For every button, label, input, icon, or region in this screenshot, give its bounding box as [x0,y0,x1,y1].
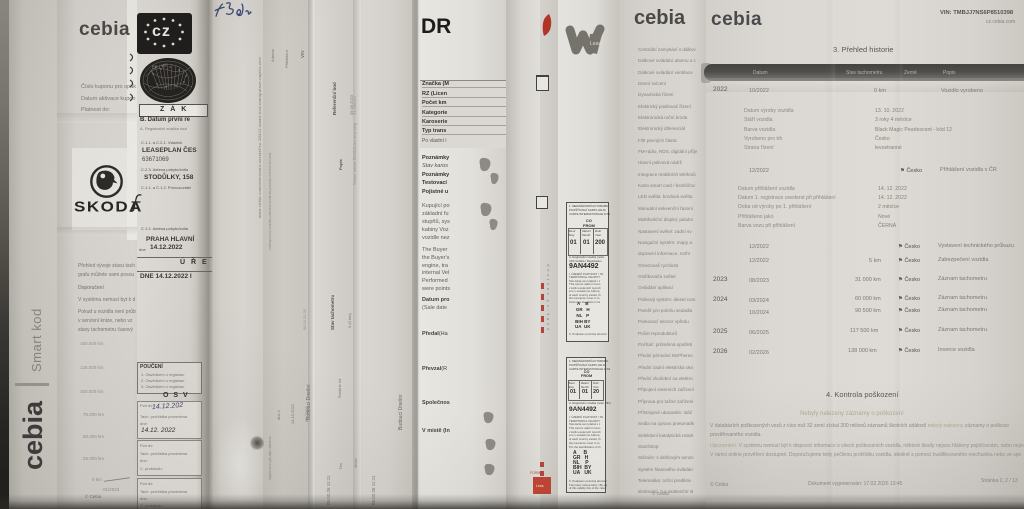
svg-text:Lease: Lease [590,41,604,47]
